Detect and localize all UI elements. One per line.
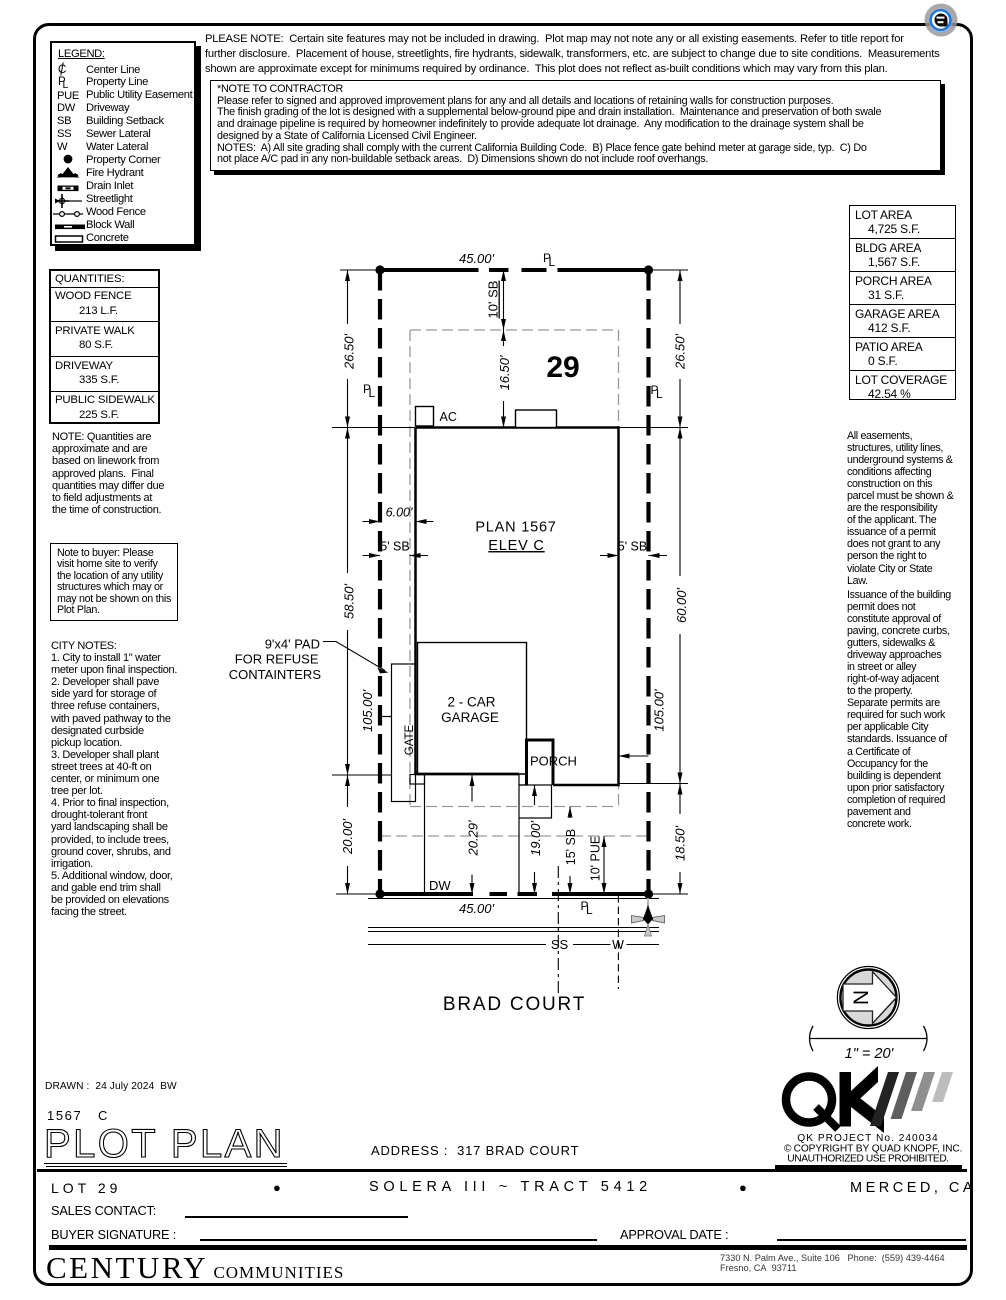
- svg-text:UNAUTHORIZED USE PROHIBITED.: UNAUTHORIZED USE PROHIBITED.: [787, 1154, 948, 1165]
- svg-text:26.50': 26.50': [673, 333, 688, 370]
- svg-text:18.50': 18.50': [673, 825, 688, 861]
- svg-text:10' PUE: 10' PUE: [589, 836, 603, 881]
- svg-text:SS: SS: [551, 937, 569, 952]
- svg-text:15' SB: 15' SB: [564, 829, 578, 865]
- svg-text:PORCH: PORCH: [530, 754, 577, 769]
- svg-text:45.00': 45.00': [459, 251, 495, 266]
- svg-text:CONTAINTERS: CONTAINTERS: [229, 667, 322, 682]
- svg-text:L: L: [586, 903, 593, 917]
- svg-text:19.00': 19.00': [528, 820, 543, 856]
- svg-text:20.00': 20.00': [340, 818, 355, 855]
- svg-text:N: N: [849, 990, 872, 1005]
- svg-text:26.50': 26.50': [342, 333, 357, 370]
- svg-text:AC: AC: [440, 410, 457, 424]
- svg-text:16.50': 16.50': [497, 355, 512, 391]
- svg-text:FOR REFUSE: FOR REFUSE: [235, 652, 319, 667]
- svg-text:L: L: [656, 387, 663, 401]
- svg-text:W: W: [612, 938, 624, 952]
- svg-text:BRAD COURT: BRAD COURT: [443, 994, 586, 1015]
- svg-text:9'x4' PAD: 9'x4' PAD: [265, 637, 320, 652]
- svg-text:L: L: [369, 386, 376, 400]
- svg-text:45.00': 45.00': [459, 901, 495, 916]
- svg-text:20.29': 20.29': [466, 820, 481, 857]
- svg-text:60.00': 60.00': [674, 587, 689, 623]
- svg-text:105.00': 105.00': [652, 689, 667, 732]
- svg-text:PLAN 1567: PLAN 1567: [475, 520, 556, 536]
- svg-text:105.00': 105.00': [360, 689, 375, 732]
- svg-text:ELEV C: ELEV C: [488, 538, 544, 554]
- svg-text:GATE: GATE: [404, 724, 416, 755]
- svg-text:5' SB: 5' SB: [380, 540, 410, 554]
- svg-text:DW: DW: [429, 878, 451, 893]
- svg-text:2 - CAR: 2 - CAR: [447, 695, 495, 710]
- svg-text:10' SB: 10' SB: [486, 281, 501, 319]
- svg-text:29: 29: [546, 351, 579, 384]
- svg-text:GARAGE: GARAGE: [441, 710, 499, 725]
- svg-text:5' SB: 5' SB: [618, 540, 648, 554]
- svg-text:6.00': 6.00': [386, 506, 413, 520]
- svg-text:1" = 20': 1" = 20': [845, 1046, 895, 1062]
- svg-text:QK PROJECT No. 240034: QK PROJECT No. 240034: [797, 1133, 938, 1144]
- svg-text:L: L: [549, 255, 556, 269]
- svg-text:58.50': 58.50': [342, 583, 357, 619]
